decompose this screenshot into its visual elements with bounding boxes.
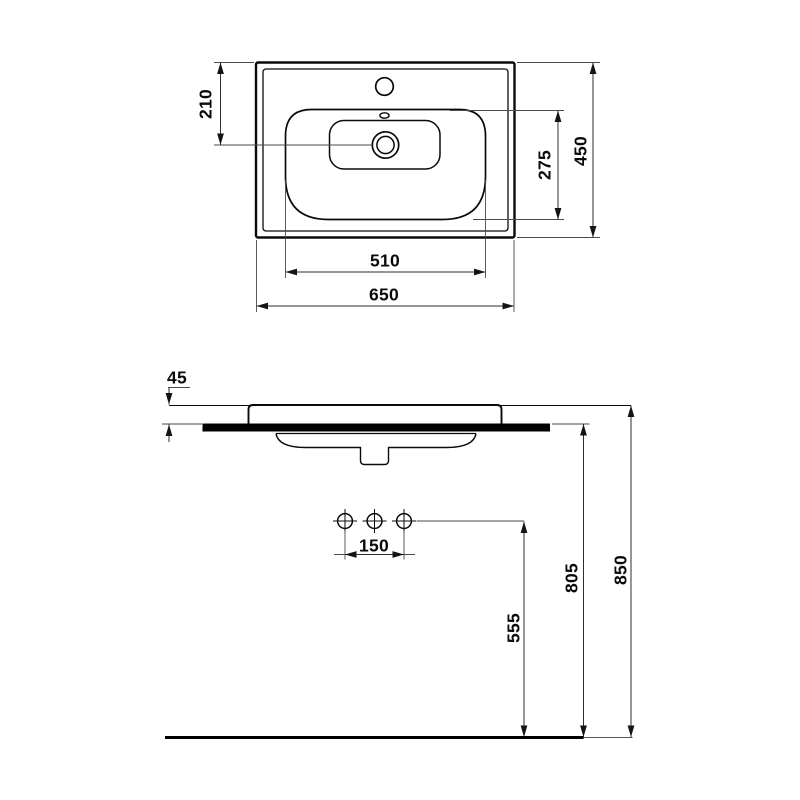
drain-inner-circle [377, 136, 394, 153]
front-bowl-underside-and-drain-outlet [276, 434, 476, 465]
faucet-hole [376, 78, 394, 96]
crosshair-right [392, 509, 416, 533]
dim-label-rim-height: 45 [167, 369, 187, 387]
crosshair-center [363, 509, 387, 533]
dim-label-trap-height: 555 [505, 613, 523, 643]
dim-label-overall-width: 650 [369, 286, 399, 304]
front-basin-slab [203, 424, 551, 432]
bowl-outline [286, 110, 486, 220]
drawing-linework [0, 0, 800, 800]
crosshair-left [333, 509, 357, 533]
top-view-outer-rim [256, 63, 515, 238]
dim-label-hole-spacing: 150 [359, 537, 389, 555]
dim-label-total-height: 850 [612, 555, 630, 585]
dim-label-underside-height: 805 [563, 563, 581, 593]
top-view-inner-rim [263, 69, 508, 231]
dim-label-bowl-depth: 275 [536, 150, 554, 180]
dim-label-overall-depth: 450 [572, 136, 590, 166]
front-rim-profile [249, 405, 502, 424]
dim-label-drain-offset: 210 [197, 89, 215, 119]
dim-label-bowl-width: 510 [370, 252, 400, 270]
overflow-hole [380, 113, 389, 118]
technical-drawing-canvas: 210 450 275 510 650 45 150 555 805 850 [0, 0, 800, 800]
